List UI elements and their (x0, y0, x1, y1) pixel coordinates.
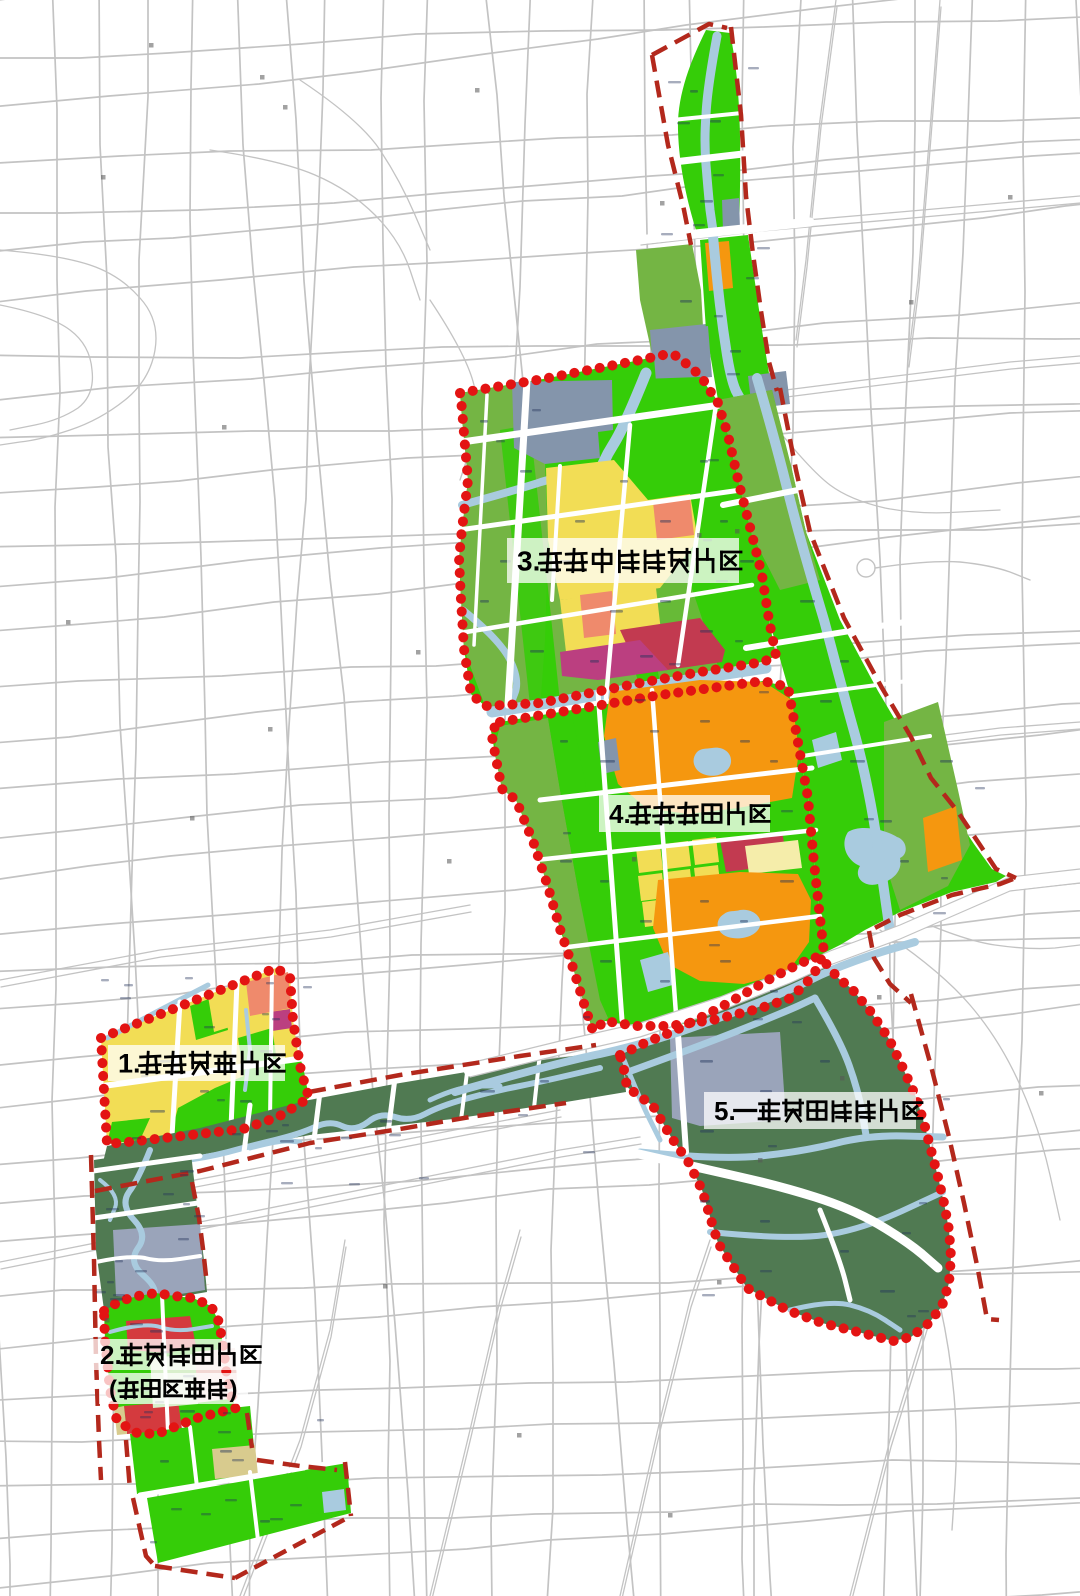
svg-text:3.: 3. (517, 546, 540, 577)
svg-text:(: ( (109, 1376, 117, 1403)
svg-text:): ) (229, 1376, 237, 1403)
svg-text:2.: 2. (100, 1340, 122, 1370)
svg-text:1.: 1. (118, 1049, 141, 1079)
svg-text:5.: 5. (714, 1096, 736, 1126)
svg-text:4.: 4. (609, 799, 631, 829)
